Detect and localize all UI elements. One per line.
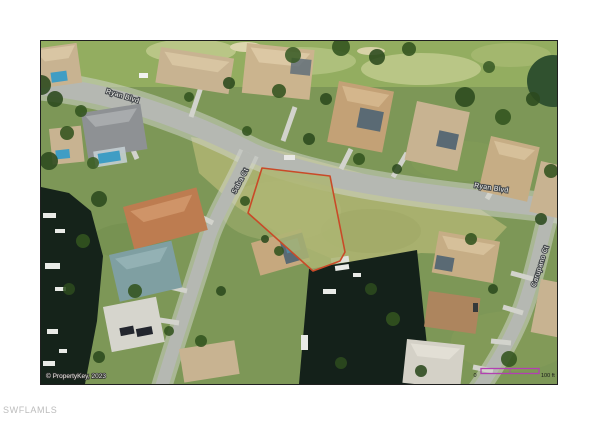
aerial-photo: Ryan Blvd Ryan Blvd Saba Ct Carupano Ct … — [40, 40, 558, 385]
scale-distance-label: 100 ft — [541, 373, 555, 379]
scale-zero-label: 0 — [473, 373, 476, 379]
copyright-label: © PropertyKey, 2023 — [46, 372, 106, 380]
aerial-photo-canvas: Ryan Blvd Ryan Blvd Saba Ct Carupano Ct … — [41, 41, 557, 384]
mls-watermark: SWFLAMLS — [3, 405, 57, 415]
listing-photo-page: Ryan Blvd Ryan Blvd Saba Ct Carupano Ct … — [0, 0, 600, 424]
